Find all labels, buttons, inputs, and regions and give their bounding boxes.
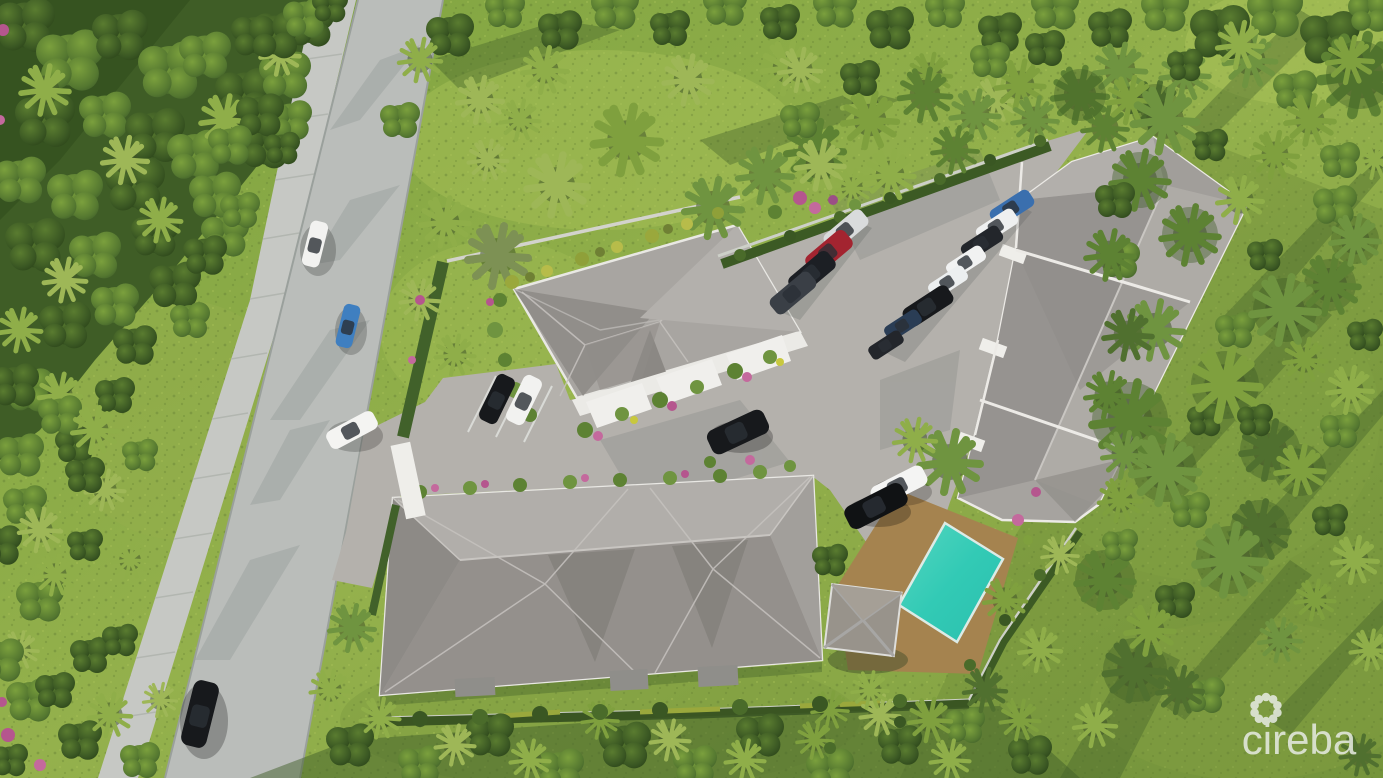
svg-text:cireba: cireba — [1242, 716, 1357, 763]
